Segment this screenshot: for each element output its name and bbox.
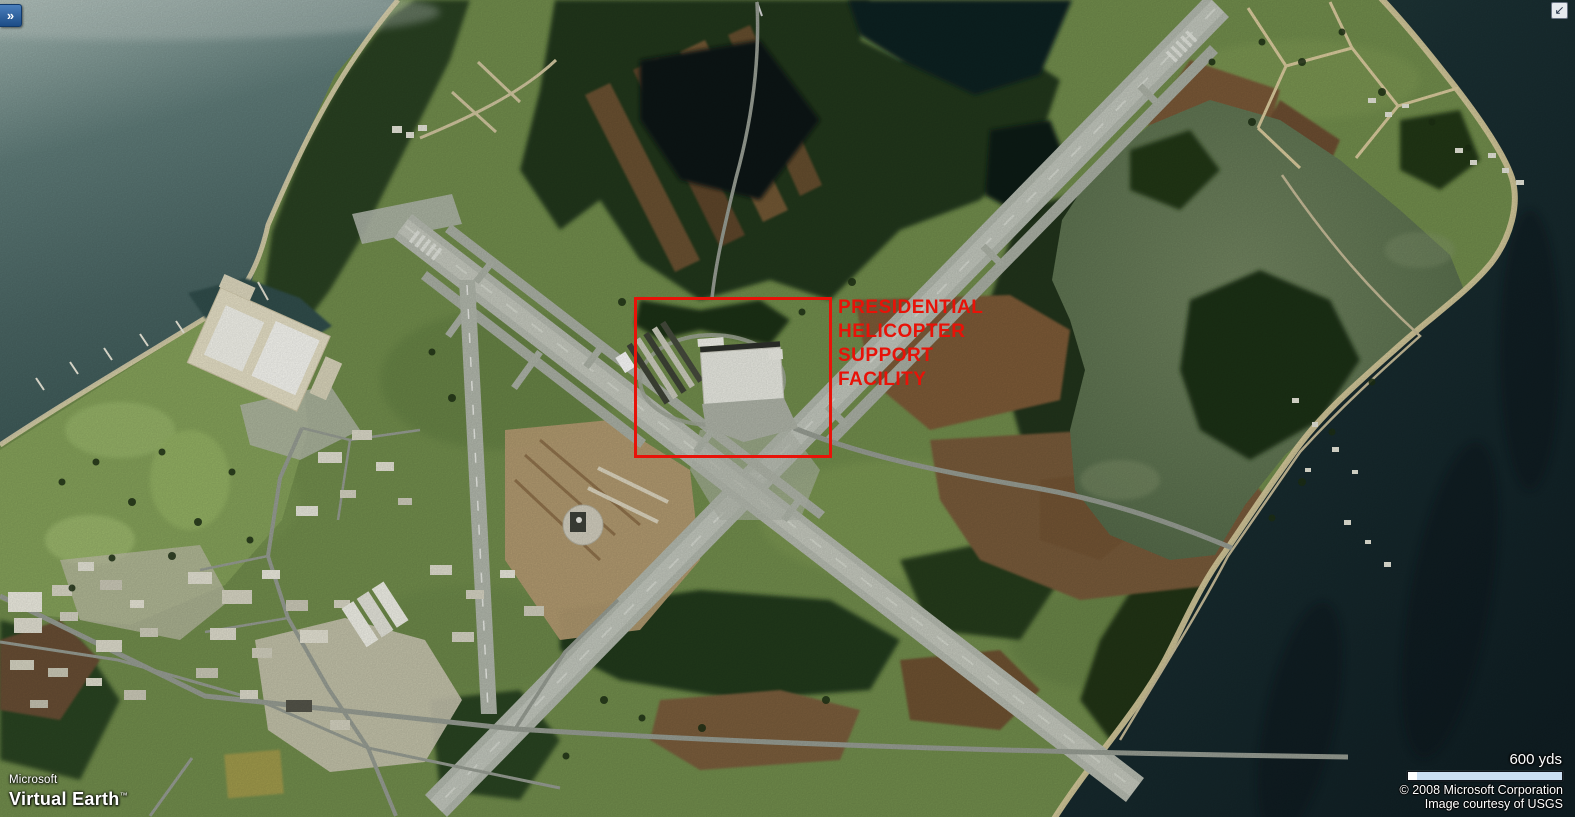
satellite-imagery [0, 0, 1575, 817]
courtesy-line: Image courtesy of USGS [1425, 797, 1563, 811]
panel-expand-button[interactable]: » [0, 4, 22, 27]
map-canvas[interactable]: PRESIDENTIAL HELICOPTER SUPPORT FACILITY… [0, 0, 1575, 817]
annotation-line: PRESIDENTIAL [838, 296, 983, 320]
logo-virtual-earth: Virtual Earth™ [9, 789, 128, 809]
scale-bar [1407, 771, 1563, 781]
annotation-label: PRESIDENTIAL HELICOPTER SUPPORT FACILITY [838, 296, 983, 392]
virtual-earth-logo: Microsoft Virtual Earth™ [9, 774, 128, 810]
annotation-line: FACILITY [838, 368, 983, 392]
double-chevron-right-icon: » [7, 8, 14, 23]
arrow-down-left-icon: ↙ [1554, 3, 1564, 17]
trademark-symbol: ™ [120, 791, 128, 800]
annotation-line: SUPPORT [838, 344, 983, 368]
scale-label: 600 yds [1509, 751, 1562, 768]
image-grain [0, 0, 1575, 817]
logo-microsoft: Microsoft [9, 774, 128, 786]
annotation-line: HELICOPTER [838, 320, 983, 344]
copyright-line: © 2008 Microsoft Corporation [1400, 783, 1563, 797]
minimize-map-button[interactable]: ↙ [1551, 2, 1568, 19]
